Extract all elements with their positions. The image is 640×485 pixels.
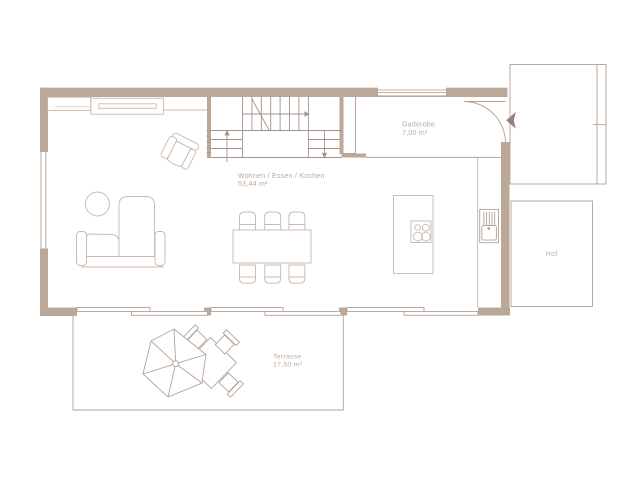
svg-text:Wohnen / Essen / Kochen: Wohnen / Essen / Kochen (238, 173, 325, 180)
svg-text:Hof: Hof (546, 251, 558, 258)
svg-text:7,00 m²: 7,00 m² (402, 130, 428, 137)
svg-text:53,44 m²: 53,44 m² (238, 181, 268, 188)
svg-text:Terrasse: Terrasse (273, 354, 301, 361)
svg-text:Gaderobe: Gaderobe (402, 122, 435, 129)
svg-text:17,50 m²: 17,50 m² (273, 361, 303, 368)
